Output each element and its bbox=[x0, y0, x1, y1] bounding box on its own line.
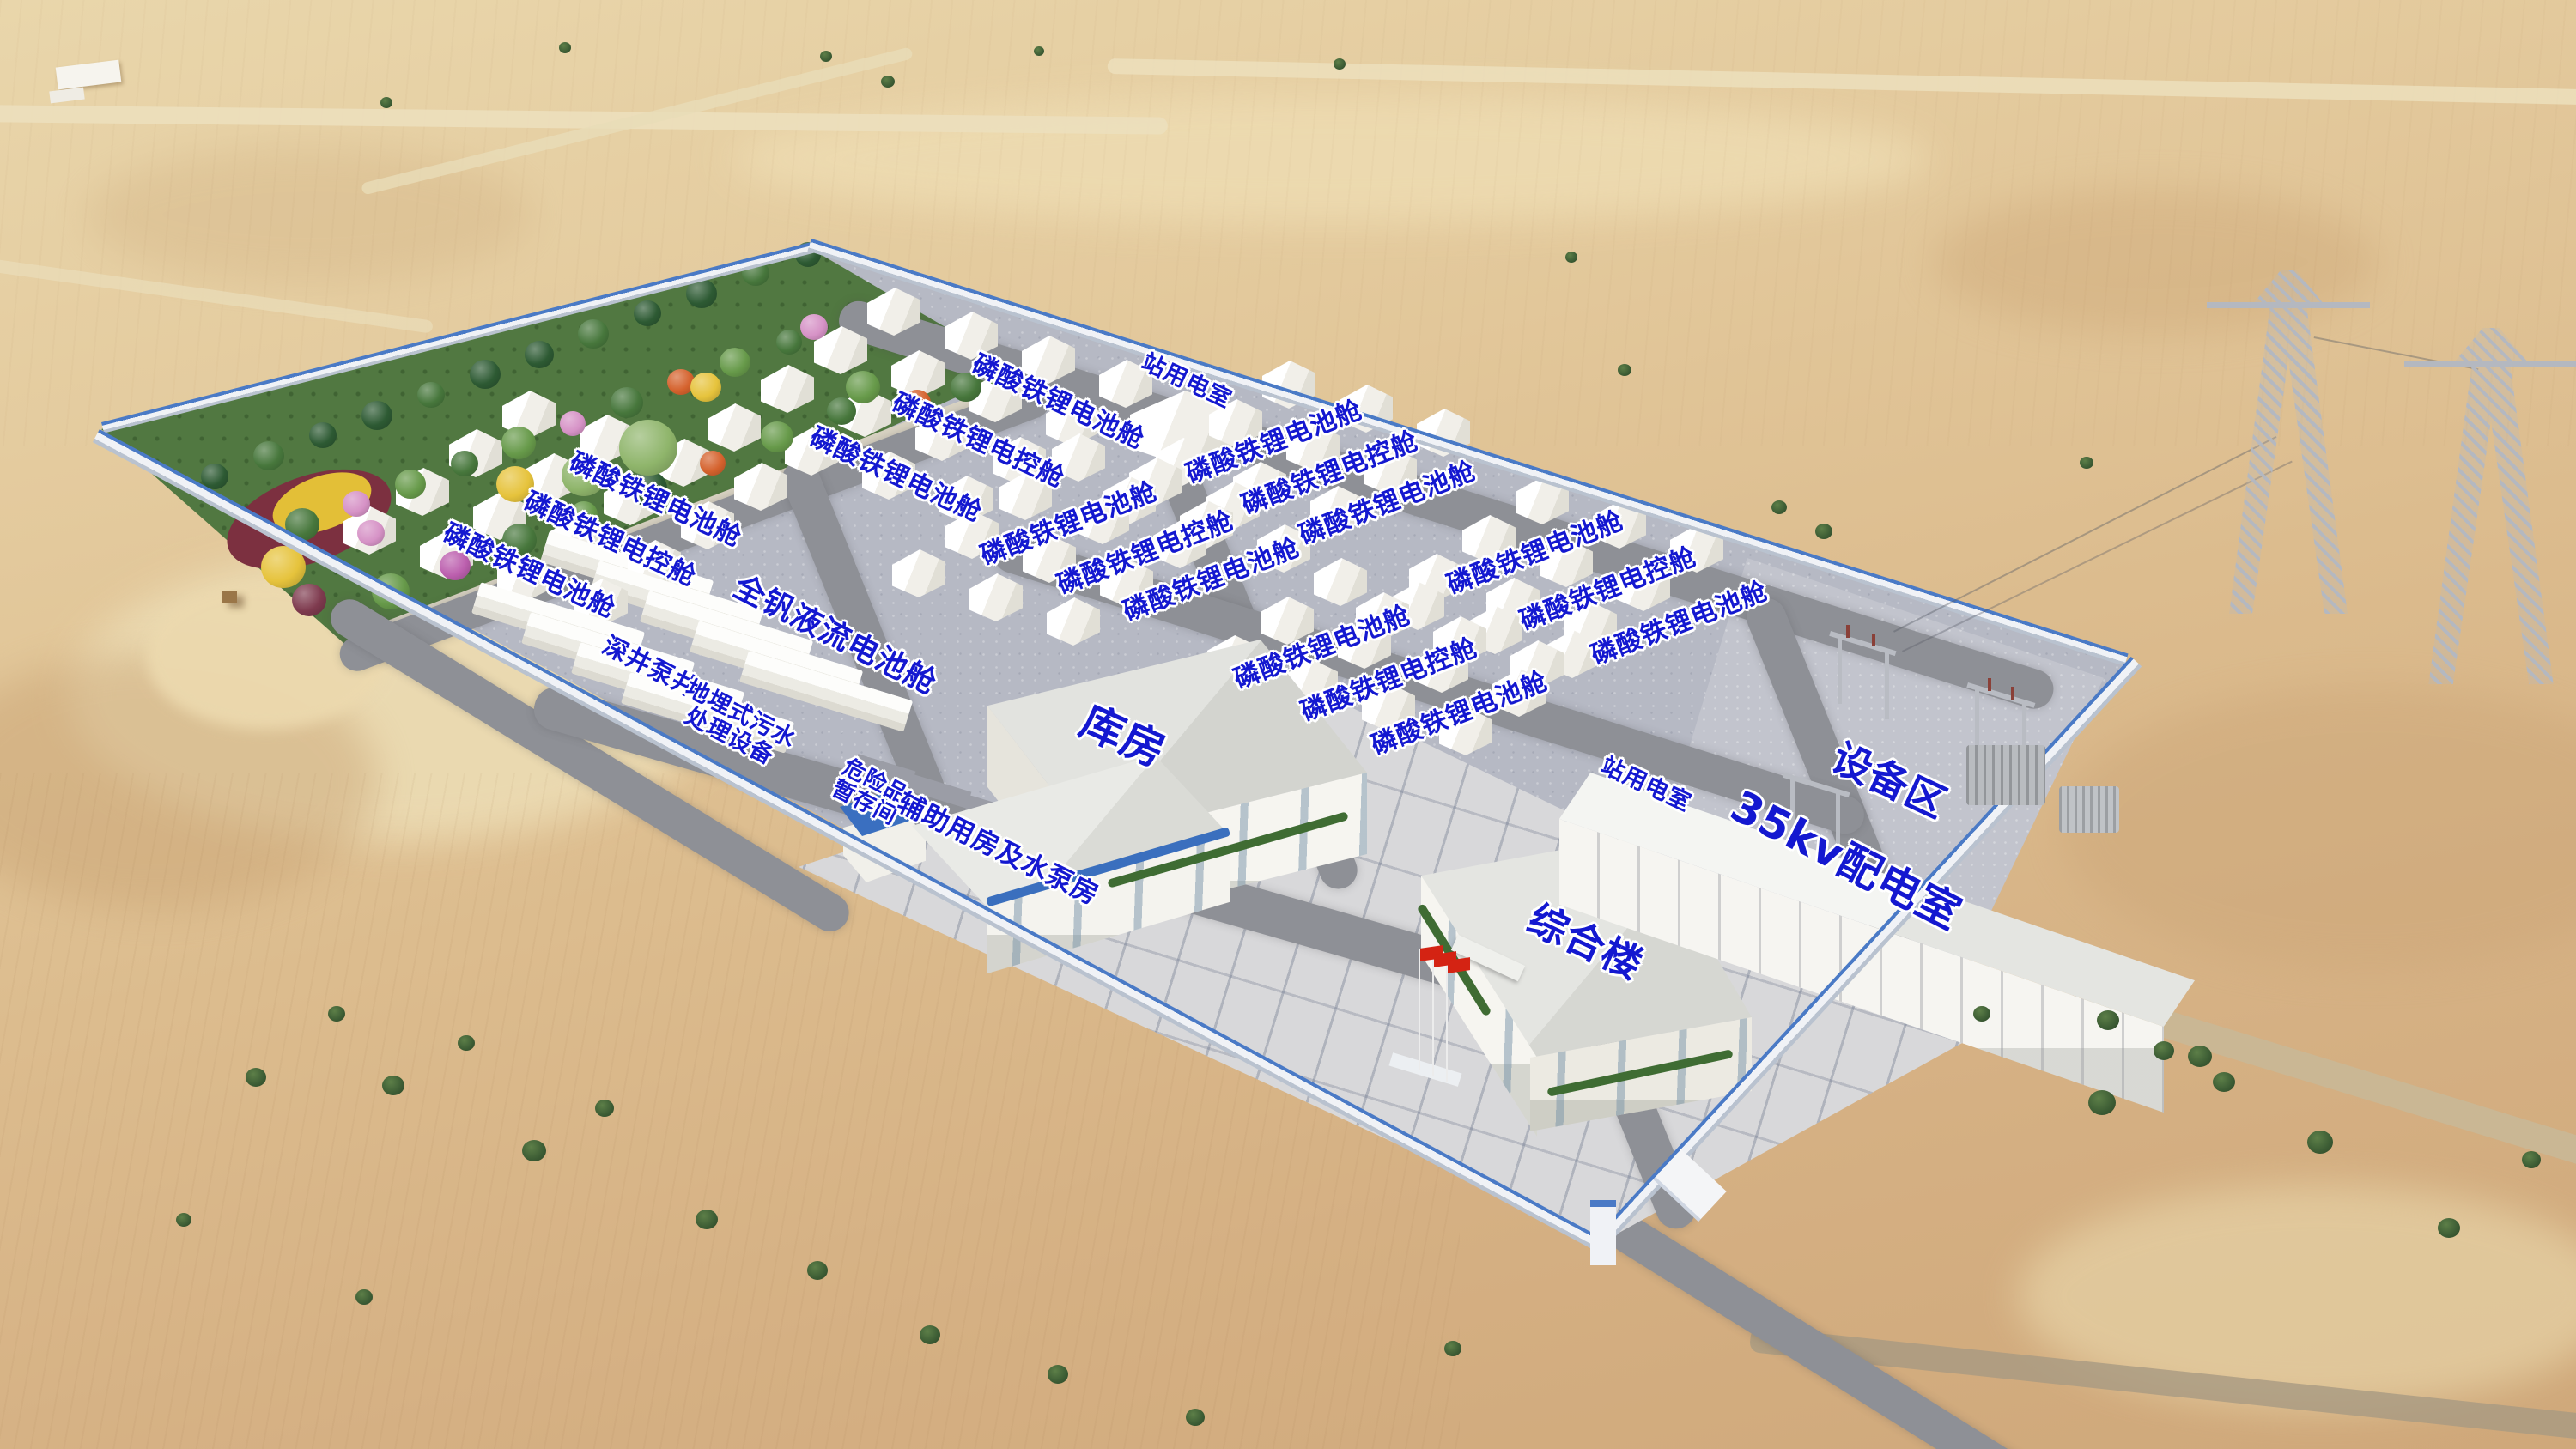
desert-shrub bbox=[1048, 1365, 1068, 1384]
garden-tree bbox=[827, 397, 856, 425]
tower-crossarm bbox=[2404, 361, 2576, 367]
desert-shrub bbox=[820, 51, 832, 62]
desert-shrub bbox=[920, 1325, 940, 1344]
desert-shrub bbox=[2188, 1046, 2212, 1067]
desert-shrub bbox=[246, 1068, 266, 1087]
garden-tree bbox=[578, 319, 609, 349]
tower-crossarm bbox=[2207, 302, 2370, 308]
desert-shrub bbox=[1973, 1006, 1990, 1022]
desert-shrub bbox=[807, 1261, 828, 1280]
desert-shrub bbox=[2088, 1090, 2116, 1115]
desert-shrub bbox=[1334, 58, 1346, 70]
desert-shrub bbox=[355, 1289, 373, 1305]
flag-pole bbox=[1446, 961, 1448, 1082]
garden-tree bbox=[417, 382, 445, 408]
garden-tree bbox=[560, 411, 586, 436]
desert-shrub bbox=[2307, 1131, 2333, 1154]
desert-shrub bbox=[696, 1210, 718, 1229]
desert-shrub bbox=[2522, 1151, 2541, 1168]
power-line bbox=[1902, 461, 2293, 652]
garden-tree bbox=[720, 348, 750, 377]
desert-shrub bbox=[881, 76, 895, 88]
substation-post bbox=[1838, 635, 1842, 704]
garden-tree bbox=[611, 387, 643, 418]
road-exit bbox=[1603, 1209, 2031, 1449]
dune-shadow-right bbox=[2061, 687, 2576, 970]
aerial-site-render: 磷酸铁锂电池舱磷酸铁锂电控舱磷酸铁锂电池舱磷酸铁锂电池舱磷酸铁锂电控舱磷酸铁锂电… bbox=[0, 0, 2576, 1449]
insulator bbox=[1872, 634, 1875, 646]
garden-tree bbox=[776, 330, 802, 355]
garden-tree bbox=[361, 401, 392, 430]
desert-shrub bbox=[2080, 457, 2093, 469]
garden-tree bbox=[846, 371, 880, 403]
desert-shrub bbox=[1186, 1409, 1205, 1426]
flag-pole bbox=[1432, 955, 1434, 1076]
garden-tree bbox=[253, 441, 284, 470]
garden-tree bbox=[634, 300, 661, 326]
transformer bbox=[1966, 745, 2045, 805]
desert-shrub bbox=[1444, 1341, 1461, 1356]
desert-shrub bbox=[328, 1006, 345, 1022]
desert-shrub bbox=[1771, 500, 1787, 514]
desert-shrub bbox=[380, 97, 392, 108]
garden-tree bbox=[619, 420, 677, 476]
garden-tree bbox=[690, 373, 721, 402]
desert-shrub bbox=[458, 1035, 475, 1051]
desert-shrub bbox=[176, 1213, 191, 1227]
garden-tree bbox=[700, 451, 726, 476]
garden-tree bbox=[395, 470, 426, 499]
garden-tree bbox=[470, 360, 501, 389]
desert-shrub bbox=[1815, 524, 1832, 539]
desert-shrub bbox=[559, 42, 571, 53]
garden-tree bbox=[525, 341, 554, 368]
transformer bbox=[2059, 786, 2119, 833]
flag-pole bbox=[1419, 949, 1420, 1070]
desert-shrub bbox=[1034, 46, 1044, 56]
desert-shrub bbox=[595, 1100, 614, 1117]
garden-tree bbox=[292, 584, 326, 616]
desert-shrub bbox=[2154, 1041, 2174, 1060]
gate-corner-post bbox=[1590, 1200, 1616, 1265]
desert-shrub bbox=[382, 1076, 404, 1095]
insulator bbox=[2011, 687, 2014, 700]
desert-shrub bbox=[1618, 364, 1631, 376]
insulator bbox=[1988, 678, 1991, 691]
desert-shrub bbox=[2097, 1010, 2119, 1030]
wooden-crate bbox=[222, 591, 237, 603]
garden-tree bbox=[761, 421, 793, 452]
desert-shrub bbox=[2213, 1072, 2235, 1092]
desert-shrub bbox=[1565, 252, 1577, 263]
garden-tree bbox=[357, 520, 385, 546]
garden-tree bbox=[343, 491, 370, 517]
desert-shrub bbox=[2438, 1218, 2460, 1238]
garden-tree bbox=[501, 427, 536, 459]
garden-tree bbox=[309, 422, 337, 448]
desert-shrub bbox=[522, 1140, 546, 1161]
substation-post bbox=[1885, 651, 1889, 719]
garden-tree bbox=[800, 314, 828, 340]
insulator bbox=[1846, 625, 1850, 638]
garden-tree bbox=[451, 451, 478, 476]
